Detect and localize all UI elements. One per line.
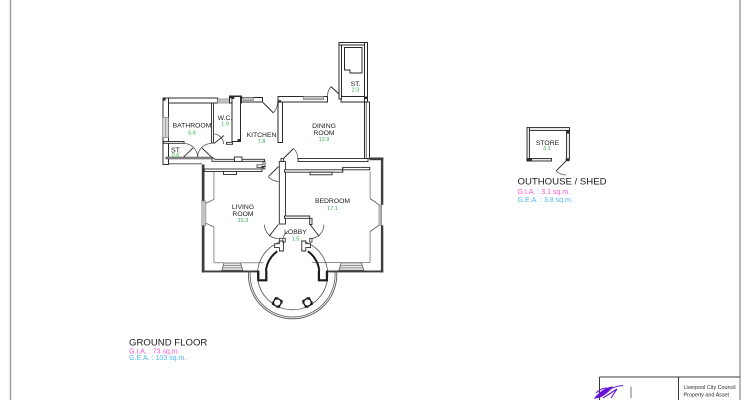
svg-text:17.1: 17.1: [327, 206, 338, 212]
svg-text:Property and Asset: Property and Asset: [684, 392, 730, 398]
svg-text:G.I.A. : 3.1 sq.m.: G.I.A. : 3.1 sq.m.: [518, 189, 571, 196]
svg-text:1.9: 1.9: [221, 122, 229, 128]
svg-text:2.3: 2.3: [352, 87, 360, 93]
svg-text:LOBBY: LOBBY: [284, 229, 307, 236]
svg-text:G.E.A. : 3.8 sq.m.: G.E.A. : 3.8 sq.m.: [518, 197, 573, 204]
svg-text:KITCHEN: KITCHEN: [247, 132, 277, 139]
svg-text:Liverpool City Council: Liverpool City Council: [684, 385, 736, 391]
svg-text:12.9: 12.9: [319, 137, 330, 143]
svg-text:GROUND FLOOR: GROUND FLOOR: [129, 337, 207, 348]
svg-text:7.8: 7.8: [258, 139, 266, 145]
svg-text:ROOM: ROOM: [313, 130, 334, 137]
svg-text:OUTHOUSE / SHED: OUTHOUSE / SHED: [518, 177, 607, 188]
svg-text:0.6: 0.6: [172, 153, 180, 159]
svg-text:15.3: 15.3: [238, 218, 249, 224]
svg-text:1.5: 1.5: [292, 237, 300, 243]
svg-text:BEDROOM: BEDROOM: [315, 198, 350, 205]
svg-text:BATHROOM: BATHROOM: [173, 123, 212, 130]
svg-text:3.1: 3.1: [543, 146, 551, 152]
svg-text:G.E.A. : 103 sq.m.: G.E.A. : 103 sq.m.: [129, 355, 186, 362]
svg-text:5.6: 5.6: [188, 131, 196, 137]
svg-text:ROOM: ROOM: [232, 211, 253, 218]
